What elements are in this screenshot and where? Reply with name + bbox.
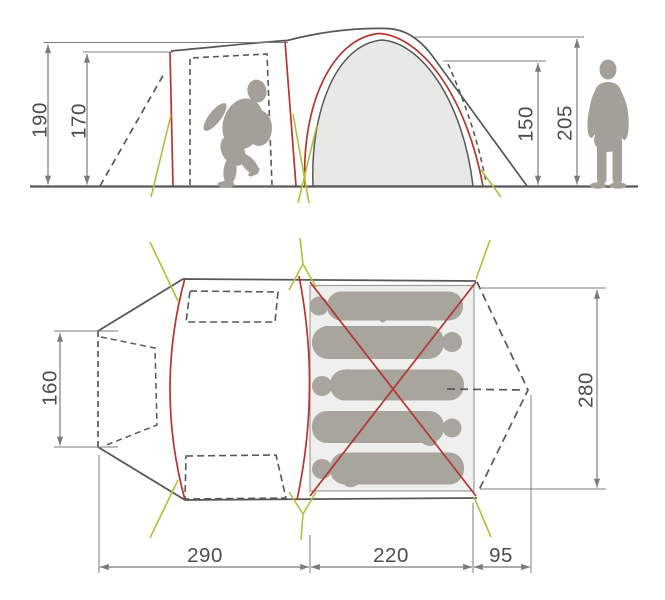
- dim-label-190: 190: [29, 102, 52, 138]
- door-top-dashed: [186, 291, 278, 322]
- tent-dimensions-diagram: 190 170 150 205: [0, 0, 665, 600]
- inner-dome-outline: [313, 40, 473, 186]
- side-view: 190 170 150 205: [29, 28, 639, 203]
- front-inner-dashed: [101, 337, 157, 446]
- dim-label-280: 280: [575, 372, 598, 408]
- top-view: 160 280 290 220 95: [39, 238, 607, 573]
- tunnel-pole-arc-2: [297, 276, 310, 500]
- standing-person-silhouette: [585, 60, 630, 189]
- door-bottom-dashed: [185, 455, 286, 499]
- dim-label-95: 95: [489, 544, 513, 567]
- front-slope-dashed: [100, 72, 165, 186]
- dim-label-160: 160: [39, 370, 62, 406]
- rear-vestibule-dashed: [477, 282, 528, 492]
- tent-dimensions-page: 190 170 150 205: [0, 0, 665, 600]
- dim-label-150: 150: [515, 106, 538, 142]
- crouching-person-silhouette: [200, 78, 272, 188]
- dim-label-220: 220: [373, 544, 409, 567]
- dim-label-170: 170: [68, 103, 91, 139]
- side-view-dimensions: 190 170 150 205: [29, 37, 585, 185]
- middle-pole: [285, 41, 296, 186]
- tunnel-pole-arc-1: [170, 278, 185, 500]
- dim-label-290: 290: [187, 544, 223, 567]
- dim-label-205: 205: [554, 105, 577, 141]
